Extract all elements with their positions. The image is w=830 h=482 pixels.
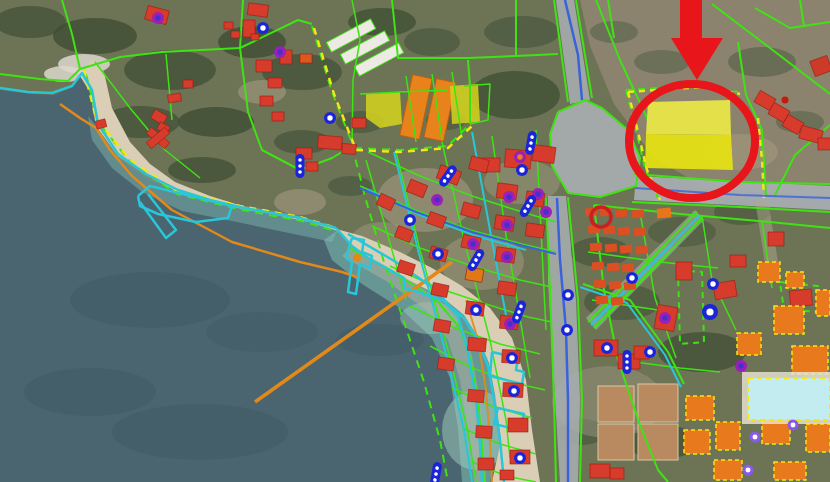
building (272, 112, 284, 121)
terraced-house (607, 262, 620, 271)
greenhouse-field (638, 424, 678, 460)
poi-marker-blue[interactable] (470, 304, 482, 316)
building (247, 3, 268, 18)
vegetation (53, 18, 137, 54)
greenhouse-field (598, 424, 634, 460)
poi-marker-blue[interactable] (626, 272, 638, 284)
building (256, 60, 272, 72)
building (433, 319, 451, 334)
resort-building (792, 346, 828, 374)
vegetation (178, 107, 254, 137)
terraced-house (615, 208, 628, 217)
building (467, 337, 486, 352)
poi-marker-blue[interactable] (516, 164, 528, 176)
terraced-house (605, 243, 618, 252)
poi-marker-purple[interactable] (514, 151, 526, 163)
building (610, 468, 624, 479)
terraced-house (596, 295, 609, 304)
building (497, 281, 517, 296)
poi-marker-purple[interactable] (503, 191, 515, 203)
highlighted-parcel[interactable] (645, 134, 733, 170)
vegetation (124, 50, 216, 90)
poi-marker-purple[interactable] (274, 46, 286, 58)
vegetation (404, 28, 460, 56)
terraced-house (657, 207, 672, 218)
poi-marker-blue[interactable] (644, 346, 656, 358)
poi-marker-blue[interactable] (324, 112, 336, 124)
building (768, 232, 784, 246)
poi-marker-blue[interactable] (508, 385, 520, 397)
clearing (274, 189, 326, 215)
building (251, 34, 259, 40)
vegetation (484, 16, 560, 48)
poi-marker-blue[interactable] (707, 278, 719, 290)
poi-marker-violet[interactable] (743, 465, 754, 476)
highlighted-parcel[interactable] (646, 100, 731, 135)
vegetation (728, 47, 796, 77)
building (532, 145, 556, 164)
sea-texture (24, 368, 156, 416)
sea-texture (112, 404, 288, 460)
terraced-house (620, 244, 633, 253)
building (224, 22, 233, 29)
resort-building (716, 422, 740, 450)
poi-marker-blue[interactable] (601, 342, 613, 354)
poi-marker-violet[interactable] (788, 420, 799, 431)
vegetation (470, 71, 560, 119)
terraced-house (636, 245, 649, 254)
sea-texture (206, 312, 318, 352)
resort-building (774, 462, 806, 480)
poi-marker-purple[interactable] (540, 206, 552, 218)
resort-building (737, 333, 761, 355)
resort-building (686, 396, 714, 420)
poi-marker-blue[interactable] (561, 324, 573, 336)
building (231, 31, 240, 38)
terraced-house (618, 226, 631, 235)
building (676, 262, 692, 280)
building (268, 78, 282, 88)
building (437, 357, 455, 371)
terraced-house (622, 263, 635, 272)
resort-building (786, 272, 804, 288)
sea-texture (70, 272, 230, 328)
poi-marker-violet[interactable] (750, 432, 761, 443)
building (300, 54, 312, 63)
resort-building (758, 262, 780, 282)
building (525, 223, 545, 238)
resort-building (714, 460, 742, 480)
poi-marker-blue[interactable] (506, 352, 518, 364)
building (476, 426, 493, 439)
poi-marker-red[interactable] (782, 97, 789, 104)
terraced-house (634, 227, 647, 236)
building (342, 143, 357, 154)
building (478, 458, 494, 470)
poi-marker-blue[interactable] (702, 304, 718, 320)
building (260, 96, 273, 106)
terraced-house (609, 280, 622, 289)
resort-building (806, 424, 830, 452)
poi-marker-purple[interactable] (152, 12, 164, 24)
map-canvas[interactable] (0, 0, 830, 482)
terraced-house (592, 261, 605, 270)
segment-marker-blue[interactable] (623, 350, 632, 374)
building (590, 464, 610, 478)
building (789, 289, 812, 307)
poi-marker-blue[interactable] (404, 214, 416, 226)
poi-marker-blue[interactable] (514, 452, 526, 464)
building (317, 135, 342, 150)
resort-building (816, 290, 830, 316)
poi-marker-purple[interactable] (735, 360, 747, 372)
poi-marker-blue[interactable] (257, 22, 269, 34)
map-view (0, 0, 830, 482)
vegetation (328, 176, 372, 196)
segment-marker-blue[interactable] (296, 154, 305, 178)
poi-marker-purple[interactable] (431, 194, 443, 206)
building (352, 118, 366, 128)
building (818, 138, 830, 150)
building (306, 162, 318, 171)
building (730, 255, 746, 267)
poi-marker-purple[interactable] (659, 312, 671, 324)
poi-marker-orange[interactable] (353, 254, 361, 262)
poi-marker-purple[interactable] (501, 251, 513, 263)
poi-marker-blue[interactable] (562, 289, 574, 301)
building (183, 80, 193, 88)
terraced-house (590, 242, 603, 251)
poi-marker-purple[interactable] (467, 238, 479, 250)
poi-marker-purple[interactable] (501, 219, 513, 231)
building (468, 389, 485, 402)
terraced-house (611, 296, 624, 305)
poi-marker-blue[interactable] (432, 248, 444, 260)
building (508, 418, 528, 432)
terraced-house (632, 209, 645, 218)
resort-building (684, 430, 710, 454)
building (500, 470, 514, 480)
greenhouse-field (638, 384, 678, 422)
resort-building (774, 306, 804, 334)
terraced-house (594, 279, 607, 288)
swimming-pool (748, 378, 830, 420)
